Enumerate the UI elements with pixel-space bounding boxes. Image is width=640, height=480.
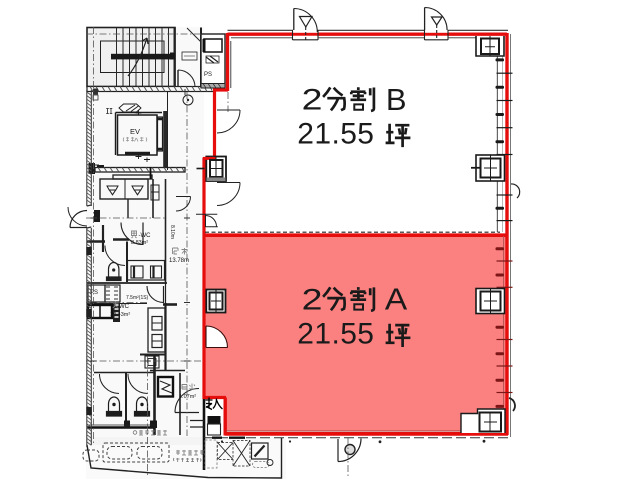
svg-text:2: 2 (302, 283, 323, 317)
svg-text:21.55: 21.55 (297, 118, 374, 151)
svg-text:21.55: 21.55 (297, 318, 374, 351)
svg-text:B: B (386, 82, 407, 117)
svg-text:PS: PS (204, 72, 212, 78)
svg-text:A: A (385, 282, 408, 317)
svg-text:2: 2 (302, 83, 323, 117)
